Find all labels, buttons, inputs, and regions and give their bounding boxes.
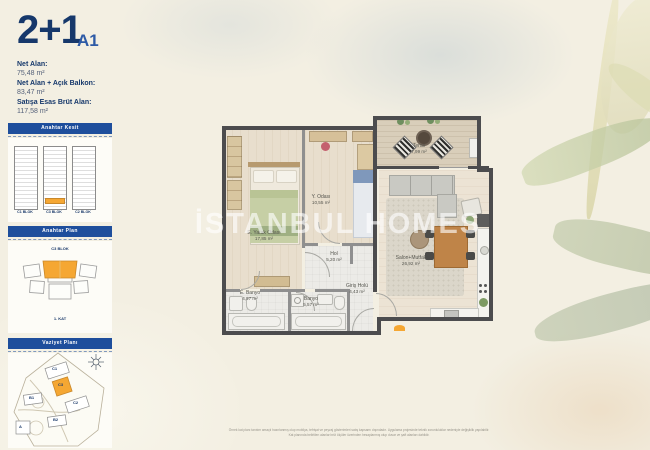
pillow [253,170,274,183]
unit-code: A1 [77,31,99,51]
compass-icon [88,354,104,370]
desk-chair [321,142,330,151]
sofa-chaise [437,194,457,218]
dining-chair [466,252,475,260]
divider [8,136,112,137]
keyplan-block-label: C3 BLOK [8,246,112,251]
keyplan-drawing [18,254,102,312]
room-label-salon: Salon+Mutfak26,92 m² [396,255,427,267]
siteplan-label-b2: B2 [53,417,58,422]
pillow [276,170,297,183]
room-label-master: E. Yatak Odası17,85 m² [247,230,280,242]
wall [373,168,377,292]
room-label-ebanyo: E. Banyo4,97 m² [240,290,260,302]
wardrobe [227,180,242,210]
siteplan-label-c1: C1 [52,366,57,371]
wall [222,126,226,335]
leaf [517,106,650,193]
siteplan-drawing [8,350,112,448]
divider [8,239,112,240]
leaf [530,272,650,350]
bathtub-basin [295,316,342,327]
stat-value: 83,47 m² [17,88,167,97]
block-label: C2 BLOK [68,210,98,214]
wall [373,116,377,172]
stat-value: 117,58 m² [17,107,167,116]
vanity-sink [317,294,333,305]
wall [222,126,377,130]
wall [489,168,493,321]
section-header-kesit: Anahtar Kesit [8,123,112,134]
block-label: C3 BLOK [39,210,69,214]
toilet [334,296,345,310]
room-label-banyo: Banyo5,57 m² [303,296,319,308]
keyplan-floor-label: 1. KAT [8,316,112,321]
plant [405,120,410,125]
block-label: C1 BLOK [10,210,40,214]
interior-wall [347,292,350,331]
interior-wall [342,243,373,246]
wall [468,166,489,169]
siteplan-label-c2: C2 [73,400,78,405]
stove-burner [479,284,482,287]
stat-label: Net Alan + Açık Balkon: [17,79,167,88]
interior-wall [226,289,240,292]
interior-wall [350,246,353,264]
dining-chair [425,230,434,238]
sliding-door [439,167,468,168]
stat-label: Satışa Esas Brüt Alan: [17,98,167,107]
wall [222,331,381,335]
dresser [254,276,290,287]
interior-wall [288,292,291,331]
desk [309,131,347,142]
wall [377,166,439,169]
room-label-hol: Hol5,20 m² [326,251,342,263]
floorplan-brochure: 2+1 A1 Net Alan: 75,48 m² Net Alan + Açı… [0,0,650,450]
highlighted-floor [45,198,65,204]
entrance-marker [394,325,405,331]
building-elevation-c1 [14,146,38,210]
watercolor-cloud [300,0,580,130]
disclaimer-line: Kat planında belirtilen alanlar brüt ölç… [213,433,505,438]
wall [377,317,381,335]
stat-value: 75,48 m² [17,69,167,78]
plant [479,298,488,307]
interior-wall [315,289,350,292]
plant [466,216,474,224]
siteplan-label-b1: B1 [29,395,34,400]
room-label-child: Y. Odası10,55 m² [312,194,331,206]
sofa [389,175,455,196]
wall [373,116,481,120]
area-stats: Net Alan: 75,48 m² Net Alan + Açık Balko… [17,60,167,117]
shelf [352,131,373,142]
section-header-vaziyet: Vaziyet Planı [8,338,112,349]
duvet-fold [250,190,298,198]
pillow [353,170,373,183]
stat-label: Net Alan: [17,60,167,69]
stove-burner [484,290,487,293]
section-header-plan: Anahtar Plan [8,226,112,237]
dining-chair [466,230,475,238]
siteplan-label-a: A [19,424,22,429]
wardrobe [227,136,242,178]
room-label-giris: Giriş Holü4,43 m² [346,283,368,295]
bathtub-basin [232,316,281,327]
building-elevation-c2 [72,146,96,210]
stove-burner [484,284,487,287]
wall [377,317,493,321]
room-label-teras: Teras7,99 m² [411,143,427,155]
kitchen-sink [480,246,489,255]
disclaimer: Örnek kat planı tanıtım amaçlı hazırlanm… [213,428,505,438]
building-elevation-c3 [43,146,67,210]
refrigerator [477,214,489,227]
dining-table [434,226,468,268]
wardrobe [357,144,374,170]
wall [477,116,481,172]
siteplan-label-c3: C3 [58,382,63,387]
leaf [549,211,650,288]
interior-wall [305,243,318,246]
interior-wall [302,130,305,248]
stove-burner [479,290,482,293]
page-title: 2+1 [17,10,82,50]
